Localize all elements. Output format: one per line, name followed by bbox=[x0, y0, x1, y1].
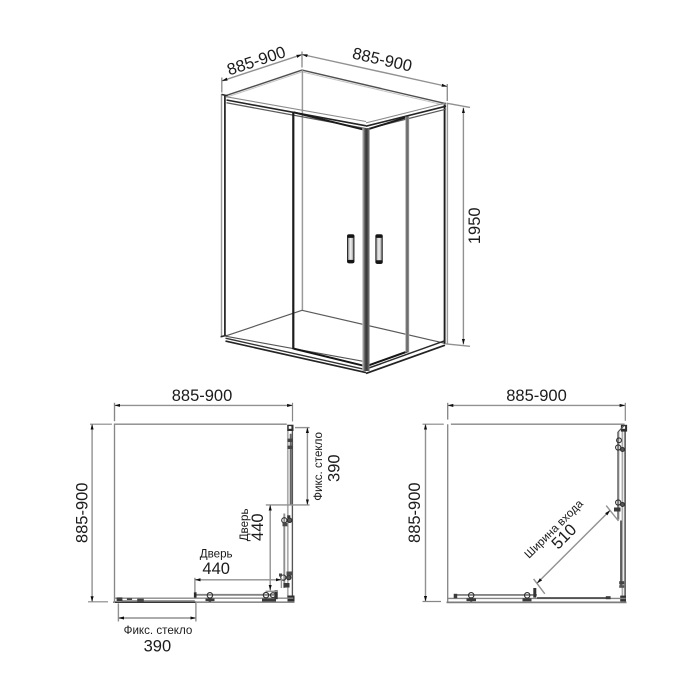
svg-text:440: 440 bbox=[249, 513, 267, 541]
svg-text:Дверь: Дверь bbox=[200, 548, 233, 561]
svg-text:885-900: 885-900 bbox=[406, 482, 424, 543]
svg-text:440: 440 bbox=[202, 560, 230, 578]
svg-text:390: 390 bbox=[144, 638, 172, 656]
svg-text:885-900: 885-900 bbox=[351, 45, 414, 76]
svg-text:Ширина входа: Ширина входа bbox=[522, 497, 586, 561]
svg-text:885-900: 885-900 bbox=[172, 387, 233, 405]
svg-text:Фикс. стекло: Фикс. стекло bbox=[124, 624, 193, 637]
svg-text:885-900: 885-900 bbox=[225, 43, 288, 79]
svg-text:390: 390 bbox=[326, 454, 344, 482]
svg-text:Фикс. стекло: Фикс. стекло bbox=[312, 432, 325, 501]
svg-text:1950: 1950 bbox=[466, 207, 484, 244]
svg-text:885-900: 885-900 bbox=[74, 483, 92, 544]
svg-text:885-900: 885-900 bbox=[506, 387, 567, 405]
